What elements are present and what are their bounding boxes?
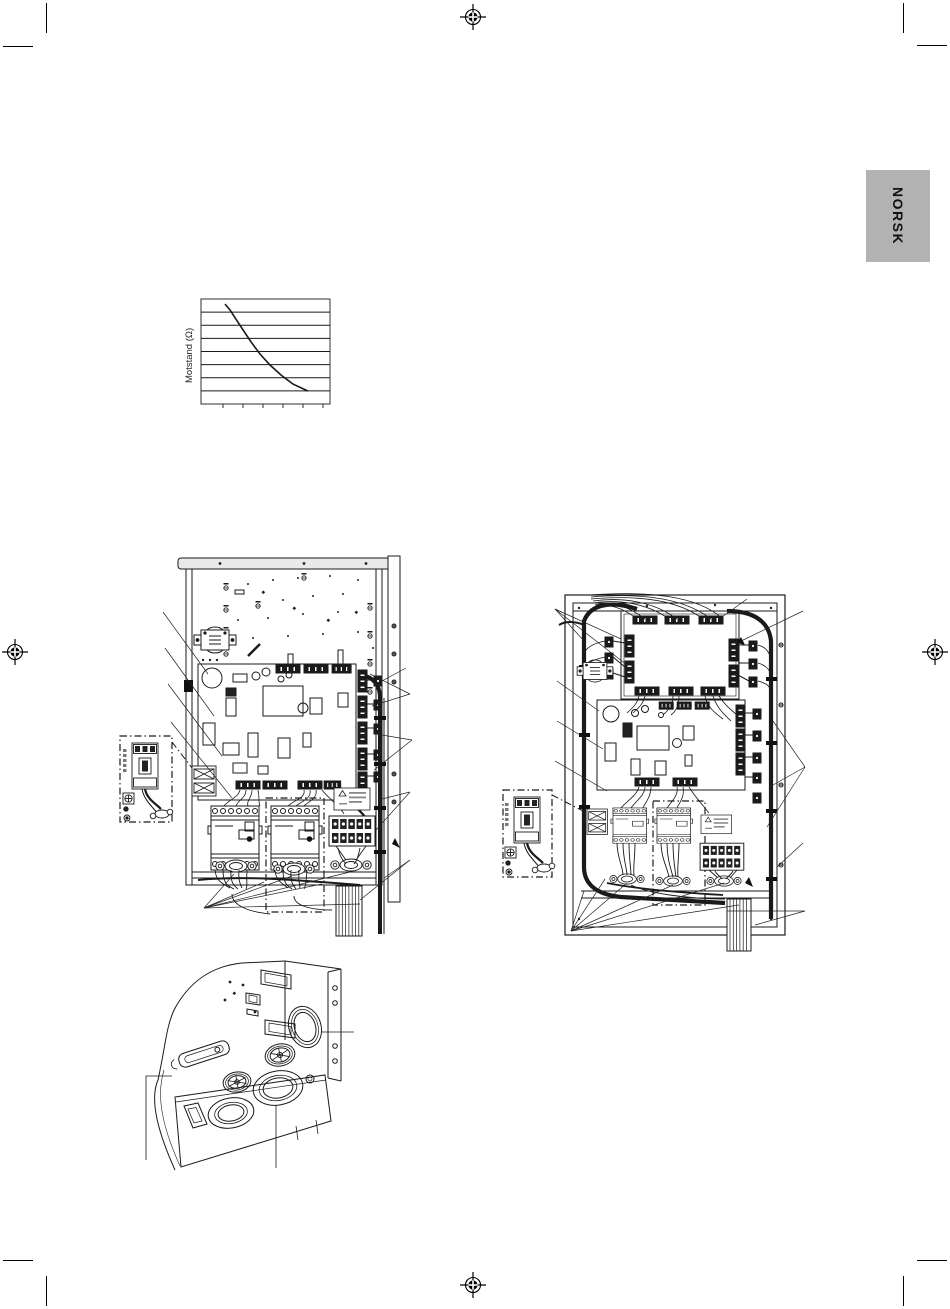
chart-plot-area (199, 297, 335, 413)
din-terminal (587, 809, 607, 835)
warning-label (334, 788, 370, 810)
cable-clamps (579, 665, 777, 881)
cable-gland (216, 860, 256, 872)
terminal-block (700, 843, 744, 870)
arrowhead (745, 877, 753, 887)
panel-holes (224, 981, 257, 1014)
cable-gland (610, 874, 644, 884)
ring-grommet (250, 1067, 305, 1109)
main-pcb (597, 700, 761, 803)
warning-label (701, 815, 732, 834)
main-pcb (198, 664, 356, 800)
slot-plate (184, 1103, 207, 1128)
mounting-studs (224, 573, 373, 694)
left-wiring-diagram (108, 548, 420, 940)
flange (328, 969, 341, 1081)
contactor-2 (268, 806, 322, 870)
crop-mark (903, 1276, 904, 1306)
handle-bracket (169, 1039, 231, 1071)
rect-cutouts (246, 970, 295, 1038)
ribbon-cable (336, 886, 362, 936)
crop-mark (46, 3, 47, 33)
cable-clamp (184, 680, 193, 692)
registration-mark-icon (920, 637, 950, 667)
flange-screws (779, 643, 783, 867)
cabinet-top-rail (178, 558, 396, 569)
cable-entry-panel-diagram (128, 948, 378, 1183)
din-terminal (192, 766, 216, 796)
ring-grommet (206, 1094, 257, 1132)
chart-y-axis-label: Motstand (Ω) (184, 298, 195, 412)
crop-mark (903, 3, 904, 33)
contactor-2 (655, 808, 693, 843)
resistance-chart: Motstand (Ω) (184, 297, 335, 413)
crop-mark (917, 1260, 947, 1261)
cable-gland (707, 876, 741, 886)
contactor-1 (611, 808, 649, 843)
spoked-grommet (263, 1041, 297, 1069)
right-wiring-diagram (487, 581, 809, 953)
registration-mark-icon (0, 637, 30, 667)
transformer (194, 627, 236, 653)
cable-gland (656, 876, 690, 886)
registration-mark-icon (458, 2, 488, 32)
spoked-grommet (221, 1070, 252, 1095)
display-pcb (621, 611, 739, 699)
crop-mark (3, 1260, 33, 1261)
breaker-detail (123, 743, 173, 821)
crop-mark (3, 46, 33, 47)
crop-mark (917, 45, 947, 46)
registration-mark-icon (458, 1270, 488, 1300)
language-tab: NORSK (866, 170, 930, 262)
cable-gland (331, 859, 371, 871)
panel-arc-edge (155, 961, 285, 1170)
ribbon-cable (727, 899, 751, 951)
large-grommet (283, 1002, 326, 1052)
breaker-detail (505, 797, 555, 875)
terminal-block (329, 816, 375, 846)
manual-page: NORSK Motstand (Ω) (0, 0, 950, 1309)
cable-gland (274, 863, 314, 875)
language-tab-label: NORSK (890, 187, 906, 245)
cabinet-side-strip (388, 556, 400, 902)
crop-mark (46, 1276, 47, 1306)
